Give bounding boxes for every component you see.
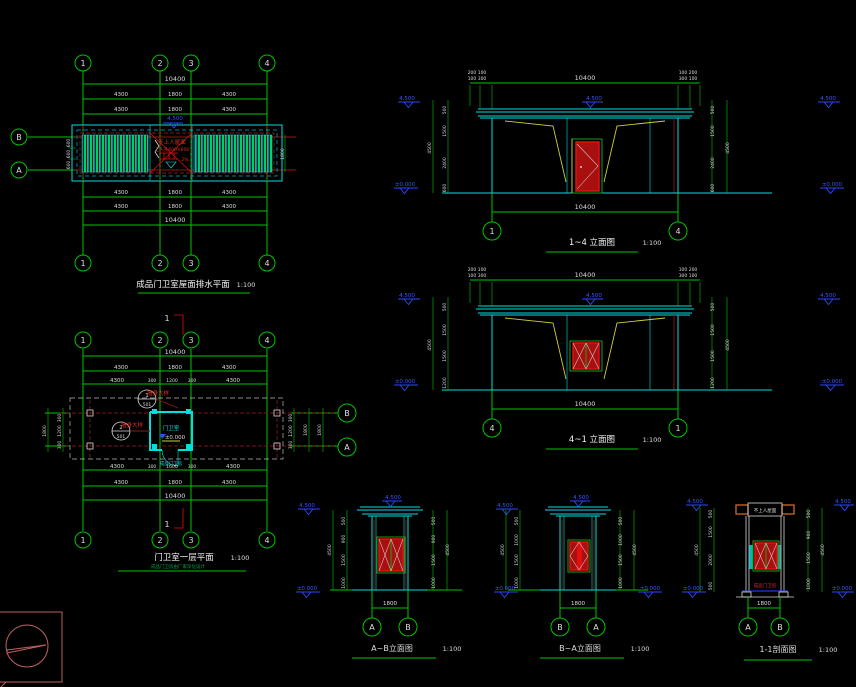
svg-text:±0.000: ±0.000 — [832, 586, 853, 592]
window — [377, 537, 405, 573]
drawing-title: 4~1 立面图 — [569, 434, 615, 445]
dim-text: 1000 — [341, 577, 347, 589]
level-marker-top-left: 4.500 — [298, 503, 320, 515]
level-marker-top-center: 4.500 — [582, 96, 603, 108]
svg-text:3: 3 — [188, 536, 193, 545]
svg-text:3: 3 — [188, 336, 193, 345]
dim-text: 1500 — [710, 125, 716, 137]
symbol-tick — [1, 682, 6, 687]
svg-text:4: 4 — [264, 259, 269, 268]
svg-text:4: 4 — [264, 59, 269, 68]
grid-bubble-B: B — [11, 129, 27, 145]
dim-text: 1500 — [431, 554, 437, 566]
svg-text:4.500: 4.500 — [573, 495, 589, 501]
svg-text:4.500: 4.500 — [687, 499, 703, 505]
dim-text: 500 — [710, 303, 716, 312]
slope-label: 2% — [181, 157, 189, 163]
dim-text: 4300 — [110, 464, 124, 470]
dim-text: 4300 — [222, 92, 236, 98]
svg-text:B: B — [777, 623, 783, 632]
dim-text: 1500 — [806, 552, 812, 564]
level-marker-ground-right: ±0.000 — [820, 182, 844, 194]
grid-bubble-4b: 4 — [259, 532, 275, 548]
symbol-needle — [7, 645, 46, 653]
level-marker-top-center: 4.500 — [382, 495, 402, 507]
room-column — [186, 444, 191, 449]
svg-text:1: 1 — [80, 59, 85, 68]
dim-text: 10400 — [575, 271, 596, 279]
dim-text: 4300 — [226, 464, 240, 470]
drawing-note: 成品门卫房由厂家深化设计 — [151, 563, 205, 570]
svg-text:4.500: 4.500 — [385, 495, 401, 501]
dim-text: 1800 — [168, 365, 182, 371]
dim-text: 1200 — [166, 378, 178, 384]
grid-bubble-1: 1 — [483, 222, 501, 240]
svg-text:4.500: 4.500 — [820, 293, 836, 299]
level-marker-ground-right: ±0.000 — [638, 586, 662, 598]
svg-text:墙身大样: 墙身大样 — [121, 421, 144, 429]
drawing-title: 1-1剖面图 — [759, 644, 796, 654]
dim-text: 100 200 — [679, 267, 698, 273]
dim-text: 600 — [710, 184, 716, 193]
dim-text: 4300 — [114, 365, 128, 371]
dim-text: 4500 — [327, 544, 333, 556]
dim-text: 900 — [341, 535, 347, 544]
dim-text: 4300 — [114, 92, 128, 98]
section-flag-bottom — [174, 508, 183, 528]
svg-text:4.500: 4.500 — [586, 293, 602, 299]
dim-text: 300 100 — [679, 76, 698, 82]
svg-text:4.500: 4.500 — [820, 96, 836, 102]
side-dim-lines — [48, 408, 323, 452]
elevation-a-b: 4.500 4.500 ±0.000 500 900 1500 1000 450… — [296, 495, 462, 658]
dim-text: 4500 — [500, 544, 506, 556]
svg-text:±0.000: ±0.000 — [297, 586, 318, 592]
dim-text: 300 — [288, 414, 294, 423]
svg-text:±0.000: ±0.000 — [495, 586, 516, 592]
svg-text:±0.000: ±0.000 — [822, 182, 843, 188]
detail-callout-2: 2 501 墙身大样 — [112, 421, 150, 440]
svg-text:4: 4 — [264, 336, 269, 345]
dim-text: 1500 — [442, 350, 448, 362]
grid-bubble-1: 1 — [75, 55, 91, 71]
svg-text:4.500: 4.500 — [497, 503, 513, 509]
dim-text: 600 — [66, 150, 72, 159]
svg-text:3: 3 — [188, 259, 193, 268]
level-marker-top-right: 4.500 — [818, 96, 840, 108]
cornice-left — [736, 505, 748, 514]
grid-bubble-3: 3 — [183, 55, 199, 71]
drawing-scale: 1:100 — [237, 281, 256, 289]
drawing-scale: 1:100 — [443, 645, 462, 653]
grid-bubble-3b: 3 — [183, 532, 199, 548]
dim-text: 1500 — [708, 526, 714, 538]
svg-text:A: A — [369, 623, 375, 632]
dim-text: 4300 — [226, 378, 240, 384]
grid-bubble-1b: 1 — [75, 255, 91, 271]
dim-text: 300 — [188, 378, 197, 384]
dim-text: 500 — [514, 517, 520, 526]
dim-text: 1500 — [442, 324, 448, 336]
grid-bubble-B: B — [338, 404, 356, 422]
dim-text: 300 — [148, 464, 157, 470]
roof-hatch-right — [194, 135, 272, 172]
svg-text:A: A — [745, 623, 751, 632]
dim-text: 4500 — [427, 339, 433, 351]
drawing-title: 1~4 立面图 — [569, 237, 615, 248]
grid-bubble-2b: 2 — [152, 255, 168, 271]
level-marker-ground-right: ±0.000 — [820, 379, 844, 391]
roof-slab — [476, 109, 694, 118]
dim-text: 4300 — [114, 107, 128, 113]
dim-text: 1600 — [166, 464, 178, 470]
footing — [742, 592, 751, 597]
dim-text: 10400 — [575, 400, 596, 408]
dim-text: 10400 — [165, 75, 186, 83]
svg-text:±0.000: ±0.000 — [395, 379, 416, 385]
level-marker-top-right: 4.500 — [818, 293, 840, 305]
level-marker-top-center: 4.500 — [570, 495, 590, 507]
grid-bubble-4: 4 — [259, 332, 275, 348]
dim-text: 1000 — [618, 534, 624, 546]
svg-text:1: 1 — [80, 536, 85, 545]
dim-text: 4500 — [632, 544, 638, 556]
svg-text:3: 3 — [188, 59, 193, 68]
dim-text: 1000 — [431, 577, 437, 589]
level-marker-top-right: 4.500 — [834, 499, 854, 511]
svg-text:2: 2 — [157, 59, 162, 68]
elevation-4-1: 200 100 100 300 100 200 300 100 10400 4.… — [394, 267, 844, 449]
dim-text: 4300 — [222, 204, 236, 210]
roof-slab — [476, 306, 694, 315]
grid-bubble-2: 2 — [152, 55, 168, 71]
dim-text: 500 — [618, 517, 624, 526]
dim-text: 1800 — [383, 601, 397, 607]
grid-bubble-A: A — [587, 618, 605, 636]
svg-text:A: A — [16, 166, 22, 175]
dim-text: 10400 — [165, 216, 186, 224]
room-level: ±0.000 — [165, 435, 186, 441]
dim-text: 1800 — [168, 92, 182, 98]
svg-text:±0.000: ±0.000 — [683, 586, 704, 592]
slope-arrow-icon — [166, 162, 176, 168]
level-marker-top-left: 4.500 — [398, 293, 420, 305]
dim-text: 1800 — [303, 424, 309, 436]
sheet-corner-symbol — [0, 612, 62, 687]
dim-text: 300 — [148, 378, 157, 384]
svg-text:2: 2 — [157, 259, 162, 268]
dim-text: 1800 — [168, 204, 182, 210]
axis-dashed — [60, 400, 336, 458]
dim-text: 1000 — [618, 577, 624, 589]
dim-text: 10400 — [575, 203, 596, 211]
svg-text:±0.000: ±0.000 — [640, 586, 661, 592]
dim-text: 600 — [66, 161, 72, 170]
svg-text:4.500: 4.500 — [835, 499, 851, 505]
window — [568, 540, 590, 572]
dim-text: 300 — [188, 464, 197, 470]
room-label: 成品门卫房 — [754, 582, 777, 589]
svg-text:B: B — [405, 623, 411, 632]
dim-text: 300 — [57, 441, 63, 450]
dim-text: 600 — [66, 139, 72, 148]
svg-text:501: 501 — [143, 402, 152, 408]
grid-bubble-4: 4 — [483, 419, 501, 437]
row-grid-lines — [28, 137, 72, 170]
svg-text:4: 4 — [264, 536, 269, 545]
cad-canvas: 4.500 不上人屋面 上人孔600×600 2% 10400 4300 180… — [0, 0, 856, 687]
dim-text: 600 — [442, 184, 448, 193]
room-column — [152, 444, 157, 449]
dim-text: 4300 — [114, 204, 128, 210]
section-mark: 1 — [164, 314, 169, 323]
grid-bubble-4: 4 — [259, 55, 275, 71]
svg-text:4.500: 4.500 — [399, 293, 415, 299]
svg-text:4: 4 — [675, 227, 680, 236]
grid-bubble-B: B — [771, 618, 789, 636]
dim-text: 1500 — [442, 125, 448, 137]
grid-bubble-A: A — [739, 618, 757, 636]
room-label: 门卫室 — [163, 424, 180, 432]
dim-text: 900 — [806, 531, 812, 540]
footing — [779, 592, 788, 597]
dim-text: 300 — [288, 441, 294, 450]
dim-text: 1000 — [514, 577, 520, 589]
dim-text: 1200 — [288, 425, 294, 437]
floor-plan-drawing: 1 1 门卫室 ±0.000 成品门卫房 1 501 墙身大样 2 501 墙身… — [42, 314, 356, 571]
level-marker-ground-left: ±0.000 — [394, 379, 418, 391]
dim-text: 1000 — [514, 534, 520, 546]
cornice-right — [782, 505, 794, 514]
level-marker-top-left: 4.500 — [686, 499, 708, 511]
dim-text: 1800 — [571, 601, 585, 607]
section-flag-top — [174, 315, 183, 335]
dim-text: 500 — [806, 510, 812, 519]
cad-viewport[interactable]: 4.500 不上人屋面 上人孔600×600 2% 10400 4300 180… — [0, 0, 856, 687]
drawing-scale: 1:100 — [643, 436, 662, 444]
section-1-1: 不上人屋面 成品门卫房 4.500 4.500 ±0.000 ±0.000 50… — [682, 499, 854, 660]
grid-bubble-2b: 2 — [152, 532, 168, 548]
grid-bubble-2: 2 — [152, 332, 168, 348]
dim-text: 500 — [710, 106, 716, 115]
dim-text: 500 — [442, 106, 448, 115]
dim-text: 1800 — [757, 601, 771, 607]
drawing-title: B~A立面图 — [559, 643, 601, 653]
dim-text: 4500 — [427, 142, 433, 154]
grid-bubble-3b: 3 — [183, 255, 199, 271]
roof-cap — [357, 507, 423, 516]
dim-text: 1200 — [57, 425, 63, 437]
svg-text:墙身大样: 墙身大样 — [147, 389, 170, 397]
roof-label: 不上人屋面 — [754, 507, 777, 514]
dim-text: 10400 — [165, 348, 186, 356]
dim-text: 300 — [57, 414, 63, 423]
dim-text: 4500 — [725, 142, 731, 154]
dim-text: 1500 — [710, 324, 716, 336]
grid-bubble-1b: 1 — [75, 532, 91, 548]
level-marker-ground-left: ±0.000 — [682, 586, 706, 598]
grid-bubble-1: 1 — [669, 419, 687, 437]
dim-text: 4300 — [222, 190, 236, 196]
detail-callout-1: 1 501 墙身大样 — [138, 389, 178, 408]
dim-text: 500 — [431, 517, 437, 526]
roof-cap — [545, 507, 611, 516]
dim-text: 2400 — [710, 157, 716, 169]
dim-text: 1200 — [442, 377, 448, 389]
dim-text: 4300 — [222, 480, 236, 486]
dim-text: 4500 — [725, 339, 731, 351]
section-mark: 1 — [164, 520, 169, 529]
svg-text:B: B — [344, 409, 350, 418]
dim-text: 500 — [341, 517, 347, 526]
svg-text:2: 2 — [157, 336, 162, 345]
dim-text: 500 — [708, 510, 714, 519]
level-marker-top-center: 4.500 — [582, 293, 603, 305]
dim-text: 1800 — [317, 424, 323, 436]
dim-text: 1000 — [806, 578, 812, 590]
dim-text: 1800 — [168, 480, 182, 486]
svg-text:B: B — [16, 133, 22, 142]
drawing-title: 门卫室一层平面 — [154, 552, 214, 563]
drawing-scale: 1:100 — [819, 646, 838, 654]
dim-text: 200 100 — [468, 70, 487, 76]
dim-text: 2400 — [442, 157, 448, 169]
roof-hatch-left — [82, 135, 148, 172]
svg-text:501: 501 — [117, 434, 126, 440]
dim-text: 4300 — [110, 378, 124, 384]
svg-text:4.500: 4.500 — [399, 96, 415, 102]
grid-bubble-B: B — [399, 618, 417, 636]
svg-text:±0.000: ±0.000 — [395, 182, 416, 188]
svg-text:4: 4 — [489, 424, 494, 433]
level-marker-ground-left: ±0.000 — [394, 182, 418, 194]
dim-text: 500 — [442, 303, 448, 312]
top-dim-ext — [470, 85, 700, 109]
level-marker-ground-right: ±0.000 — [832, 586, 854, 598]
dim-text: 100 200 — [679, 70, 698, 76]
dim-text: 1800 — [280, 148, 286, 160]
dim-text: 900 — [431, 535, 437, 544]
grid-bubble-3: 3 — [183, 332, 199, 348]
elevation-1-4: 200 100 100 300 100 200 300 100 10400 4.… — [394, 70, 844, 252]
entry-door — [572, 139, 602, 193]
svg-text:2: 2 — [157, 536, 162, 545]
level-marker-top-left: 4.500 — [496, 503, 518, 515]
level-marker-top-left: 4.500 — [398, 96, 420, 108]
svg-text:A: A — [344, 443, 350, 452]
svg-text:4.500: 4.500 — [299, 503, 315, 509]
level-text: 4.500 — [167, 116, 183, 122]
grid-bubble-4: 4 — [669, 222, 687, 240]
dim-text: 1200 — [710, 377, 716, 389]
top-dim-ext — [470, 282, 700, 306]
dim-text: 4500 — [820, 544, 826, 556]
drawing-title: A~B立面图 — [371, 643, 413, 653]
dim-text: 4300 — [114, 480, 128, 486]
drawing-scale: 1:100 — [631, 645, 650, 653]
dim-text: 10400 — [165, 492, 186, 500]
svg-text:1: 1 — [675, 424, 680, 433]
roof-level-marker: 4.500 — [163, 116, 183, 128]
svg-text:1: 1 — [489, 227, 494, 236]
level-marker-ground-left: ±0.000 — [296, 586, 320, 598]
dim-text: 500 — [708, 582, 714, 591]
dim-text: 4300 — [222, 107, 236, 113]
roof-plan-drawing: 4.500 不上人屋面 上人孔600×600 2% 10400 4300 180… — [11, 55, 296, 293]
dim-text: 2000 — [708, 554, 714, 566]
svg-text:1: 1 — [80, 336, 85, 345]
dim-text: 1500 — [618, 554, 624, 566]
dim-text: 1500 — [710, 350, 716, 362]
svg-text:B: B — [557, 623, 563, 632]
window — [570, 341, 602, 371]
dim-text: 200 100 — [468, 267, 487, 273]
dim-text: 1800 — [168, 190, 182, 196]
dim-text: 1500 — [341, 554, 347, 566]
drawing-scale: 1:100 — [643, 239, 662, 247]
grid-bubble-A: A — [11, 162, 27, 178]
window — [753, 541, 779, 571]
grid-bubble-A: A — [338, 438, 356, 456]
grid-bubble-1: 1 — [75, 332, 91, 348]
dim-text: 4500 — [694, 544, 700, 556]
svg-text:1: 1 — [80, 259, 85, 268]
dim-text: 1800 — [42, 425, 48, 437]
svg-text:A: A — [593, 623, 599, 632]
grid-bubble-4b: 4 — [259, 255, 275, 271]
dim-text: 4300 — [114, 190, 128, 196]
drawing-scale: 1:100 — [231, 554, 250, 562]
elevation-b-a: 4.500 4.500 ±0.000 ±0.000 500 1000 1500 … — [494, 495, 662, 658]
dim-text: 10400 — [575, 74, 596, 82]
dim-text: 4500 — [445, 544, 451, 556]
hatch-ladder-symbol — [160, 153, 178, 159]
svg-text:4.500: 4.500 — [586, 96, 602, 102]
svg-text:±0.000: ±0.000 — [822, 379, 843, 385]
dim-text: 100 300 — [468, 76, 487, 82]
window-jamb — [750, 545, 753, 569]
grid-bubble-B: B — [551, 618, 569, 636]
roof-center-label-2: 上人孔600×600 — [155, 146, 190, 153]
dim-text: 100 300 — [468, 273, 487, 279]
dim-text: 4300 — [222, 365, 236, 371]
dim-text: 1500 — [514, 554, 520, 566]
roof-center-label-1: 不上人屋面 — [158, 138, 186, 146]
dim-text: 300 100 — [679, 273, 698, 279]
dim-text: 1800 — [168, 107, 182, 113]
drawing-title: 成品门卫室屋面排水平面 — [136, 279, 230, 290]
grid-bubble-A: A — [363, 618, 381, 636]
